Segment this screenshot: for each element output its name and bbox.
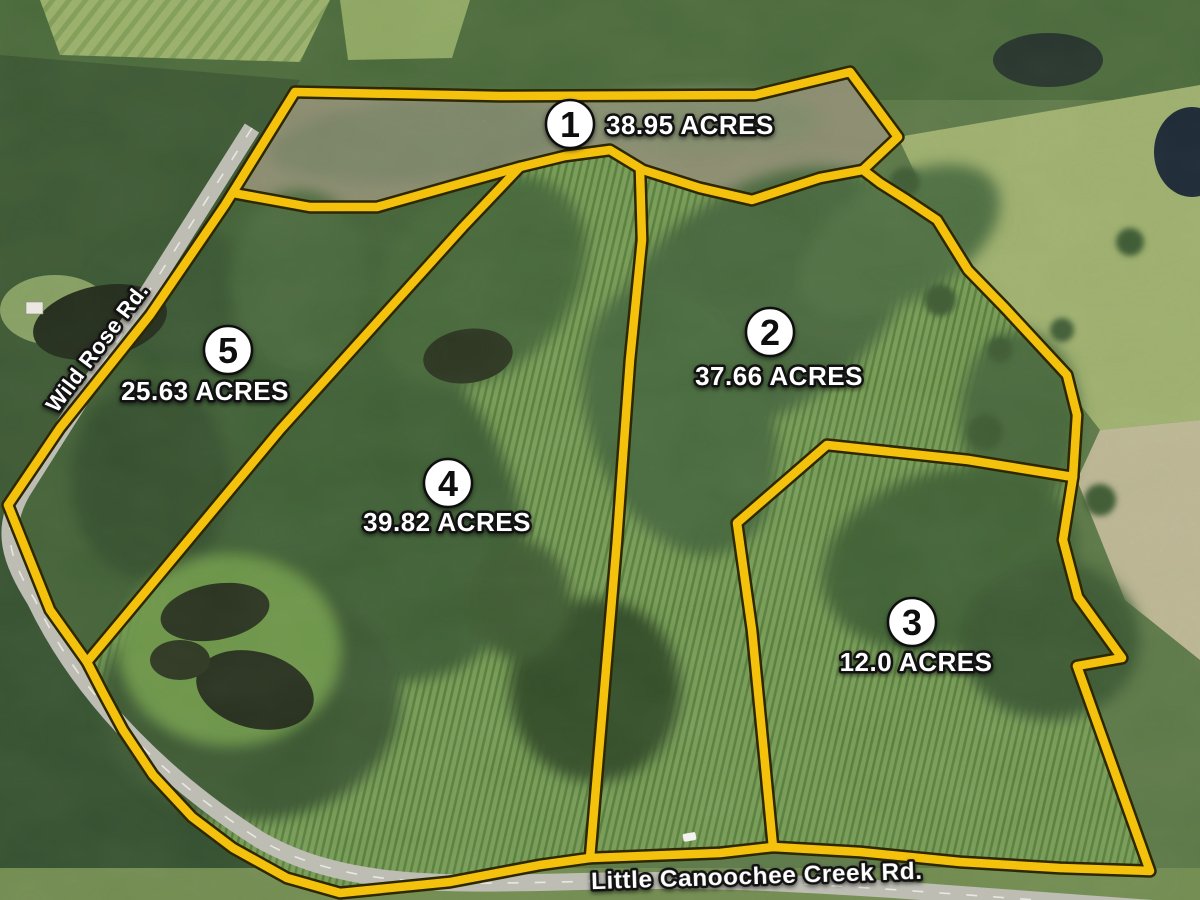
parcel-2-number: 2 [760,312,780,353]
parcel-5-acreage-label: 25.63 ACRES [121,376,289,406]
parcel-4-acreage-label: 39.82 ACRES [363,507,531,537]
parcel-3-acreage-label: 12.0 ACRES [840,647,993,677]
parcel-5-number: 5 [218,330,238,371]
parcel-3-number: 3 [902,602,922,643]
aerial-parcel-map: 1 38.95 ACRES 2 37.66 ACRES 3 12.0 ACRES… [0,0,1200,900]
parcel-1-acreage-label: 38.95 ACRES [606,110,774,140]
parcel-4-number: 4 [438,463,458,504]
parcel-2-acreage-label: 37.66 ACRES [695,361,863,391]
house [26,302,43,314]
parcel-1-number: 1 [560,104,580,145]
